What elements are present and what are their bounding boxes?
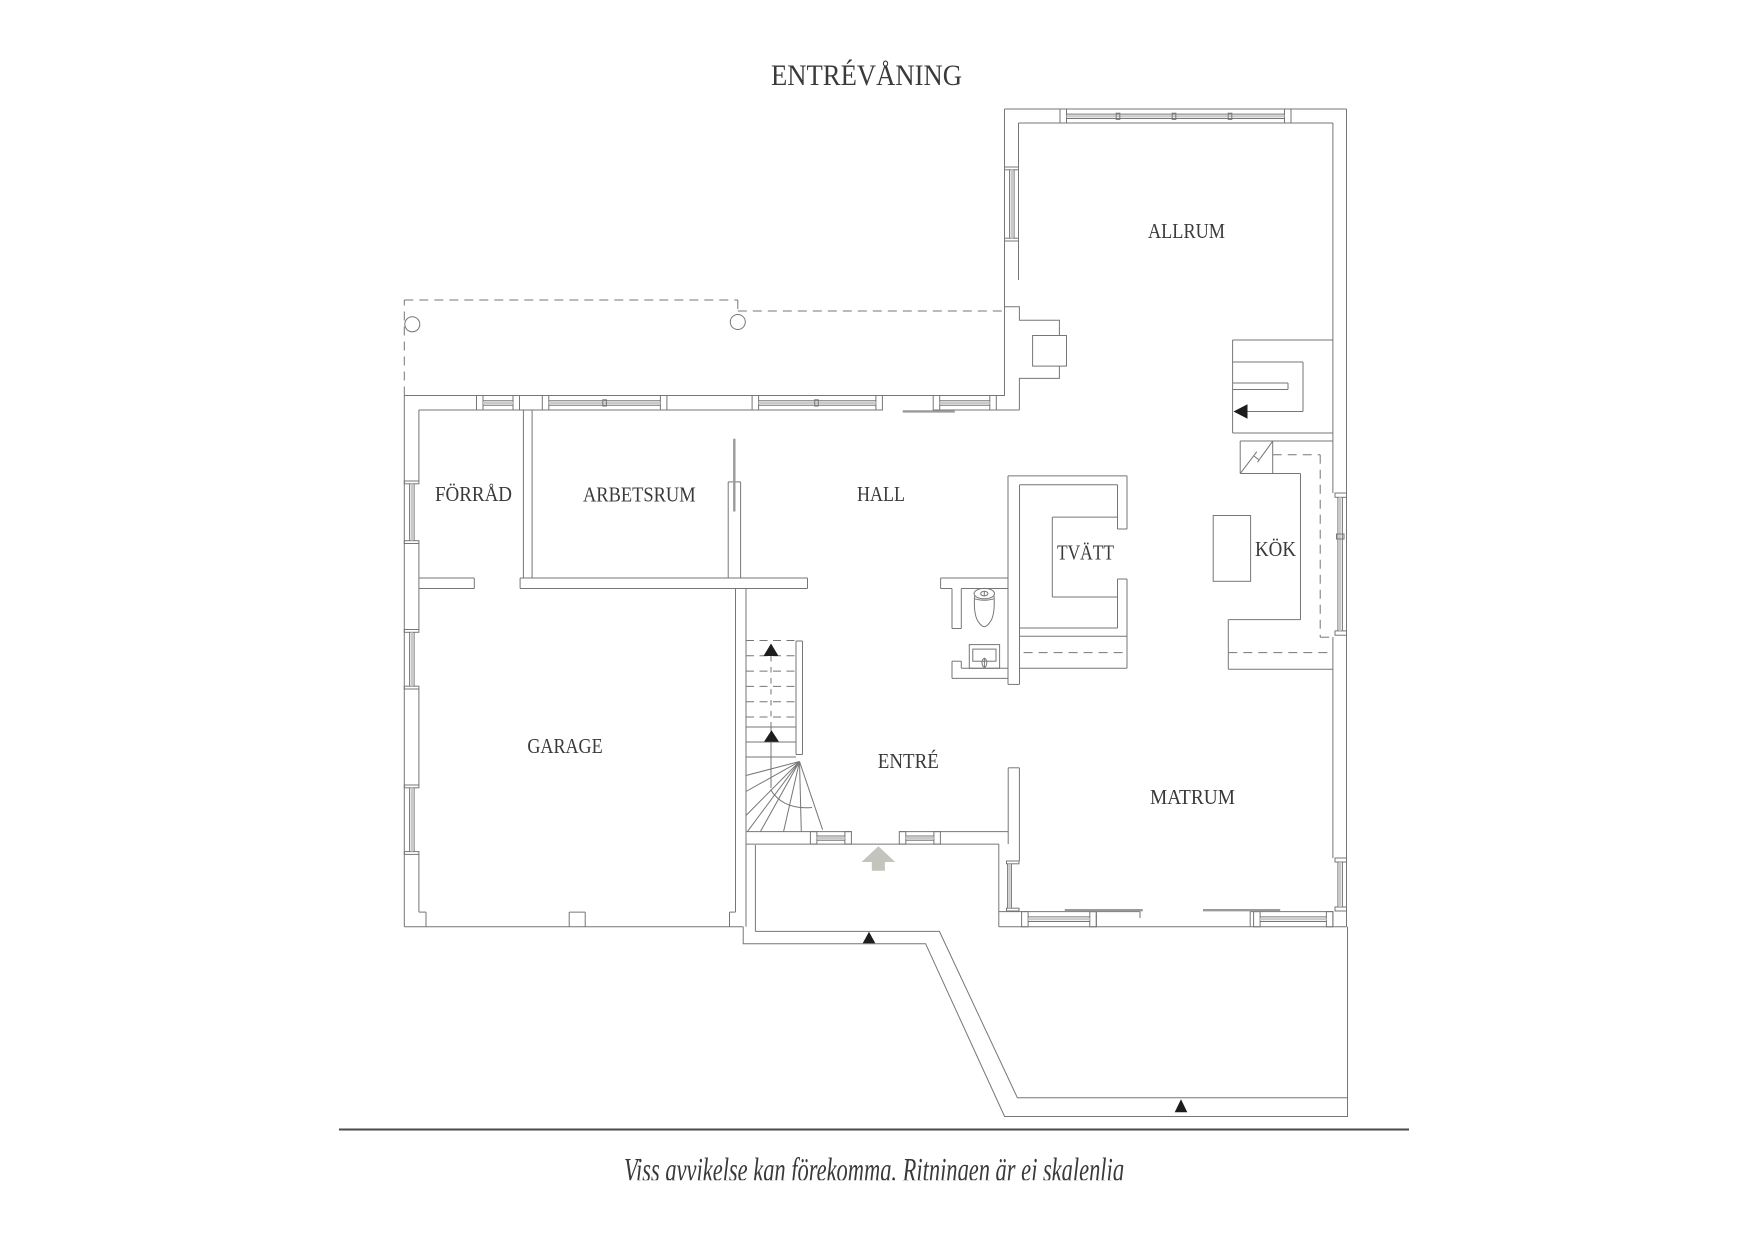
svg-text:KÖK: KÖK: [1255, 537, 1296, 561]
svg-text:ENTRÉ: ENTRÉ: [878, 749, 939, 773]
svg-text:ARBETSRUM: ARBETSRUM: [583, 483, 696, 507]
svg-text:GARAGE: GARAGE: [527, 734, 602, 758]
svg-text:ALLRUM: ALLRUM: [1148, 219, 1225, 243]
svg-text:MATRUM: MATRUM: [1150, 785, 1235, 809]
svg-text:Viss avvikelse kan förekomma.: Viss avvikelse kan förekomma. Ritningen …: [624, 1152, 1124, 1189]
svg-text:TVÄTT: TVÄTT: [1057, 541, 1114, 565]
svg-text:HALL: HALL: [857, 482, 905, 506]
svg-text:ENTRÉVÅNING: ENTRÉVÅNING: [771, 59, 962, 92]
svg-text:FÖRRÅD: FÖRRÅD: [435, 482, 512, 506]
